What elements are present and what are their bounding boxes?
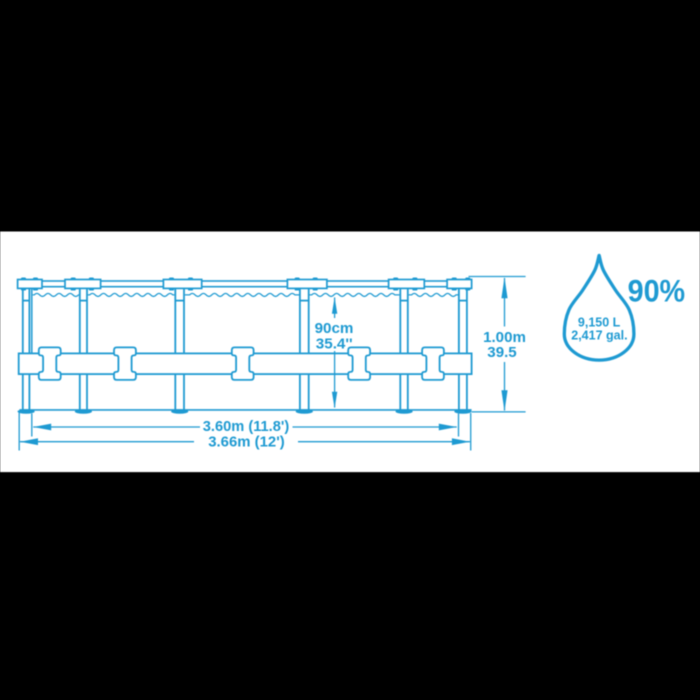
svg-text:35.4'': 35.4''	[316, 335, 353, 352]
svg-text:3.66m (12'): 3.66m (12')	[208, 434, 285, 450]
svg-text:3.60m (11.8'): 3.60m (11.8')	[203, 419, 290, 435]
svg-text:90%: 90%	[628, 273, 686, 308]
svg-text:39.5: 39.5	[487, 344, 516, 361]
svg-text:2,417 gal.: 2,417 gal.	[571, 329, 627, 343]
svg-text:9,150 L: 9,150 L	[578, 316, 621, 330]
